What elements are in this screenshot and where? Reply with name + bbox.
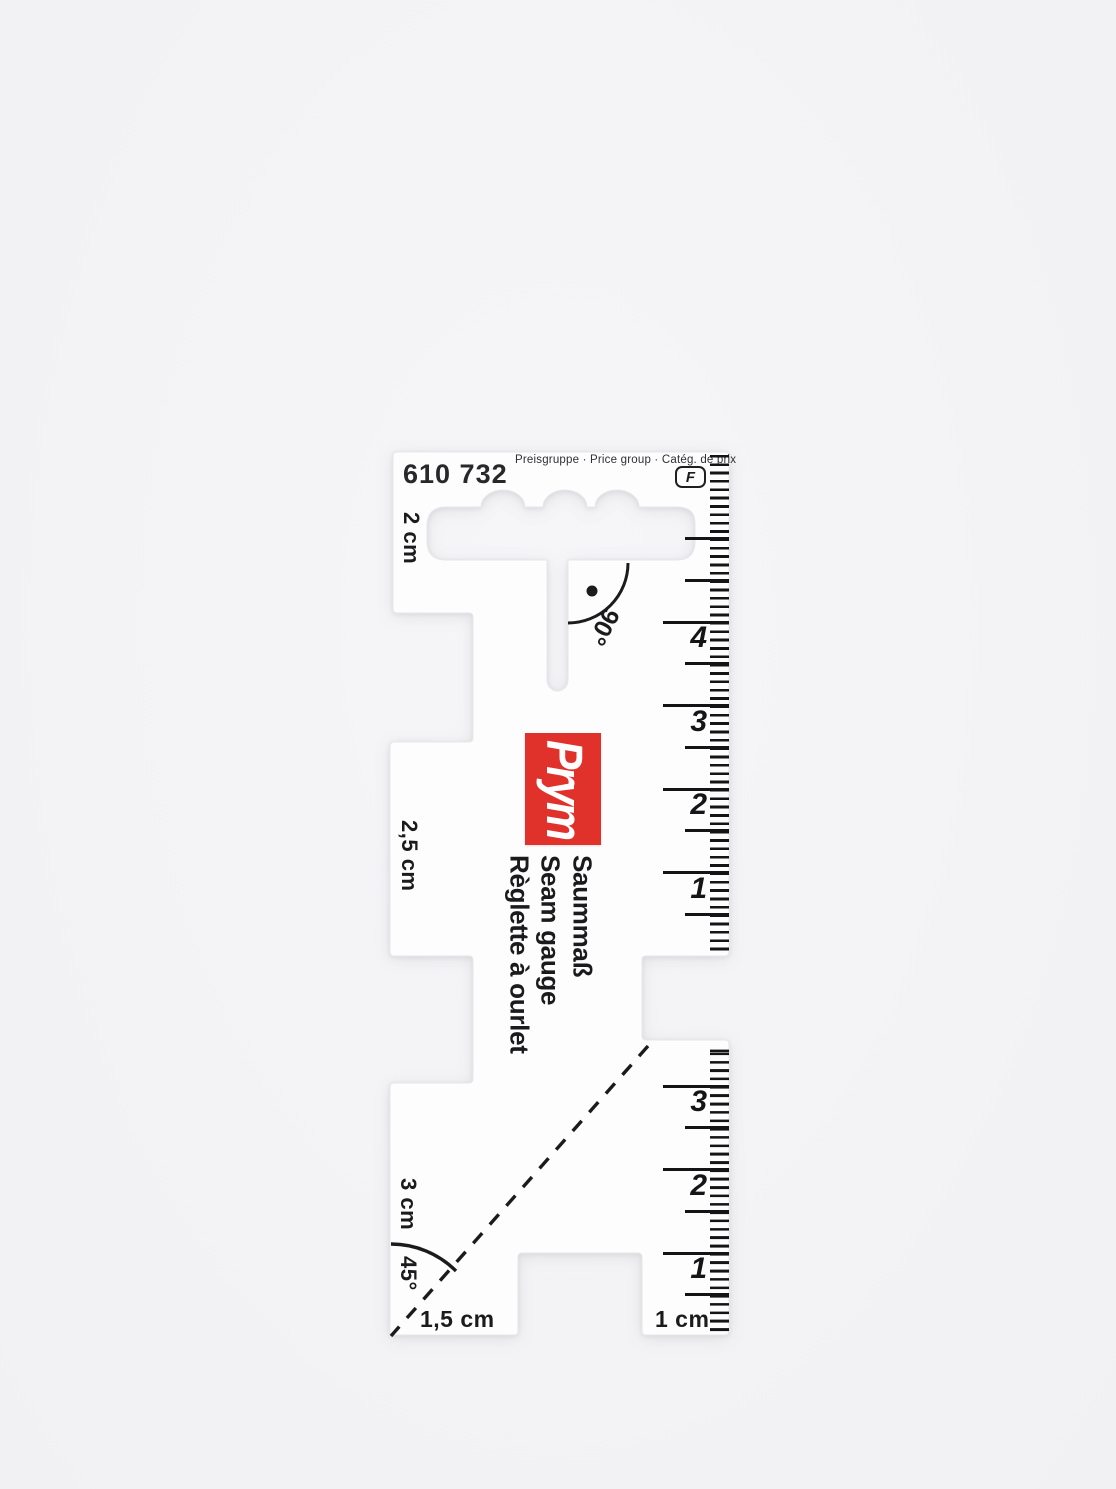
prym-logo-rotated: Prym xyxy=(525,733,601,845)
part-number: 610 732 xyxy=(403,459,508,490)
ruler-top-halfline xyxy=(685,829,729,832)
gauge-printing: 610 732 Preisgruppe · Price group · Caté… xyxy=(388,450,730,1337)
ruler-bottom-halfline xyxy=(685,1293,729,1296)
ruler-top-number: 2 xyxy=(680,792,707,818)
ruler-top-halfline xyxy=(685,662,729,665)
ruler-top-number: 1 xyxy=(680,876,707,902)
price-group-value: F xyxy=(686,469,695,486)
product-name-fr: Règlette à ourlet xyxy=(503,855,535,1054)
label-tab-3cm: 3 cm xyxy=(395,1178,447,1204)
label-tab-2-5cm: 2,5 cm xyxy=(396,820,468,846)
ruler-bottom-number: 2 xyxy=(680,1173,707,1199)
ruler-bottom-number: 1 xyxy=(680,1256,707,1282)
product-photo: 610 732 Preisgruppe · Price group · Caté… xyxy=(0,0,1116,1489)
ruler-top-halfline xyxy=(685,537,729,540)
price-group-badge: F xyxy=(675,466,706,488)
label-notch-1-5cm: 1,5 cm xyxy=(420,1306,495,1333)
ruler-bottom-halfline xyxy=(685,1210,729,1213)
label-edge-1cm: 1 cm xyxy=(655,1306,709,1333)
ruler-bottom-number: 3 xyxy=(680,1089,707,1115)
label-angle-90: 90° xyxy=(577,594,630,659)
ruler-top-halfline xyxy=(685,579,729,582)
ruler-bottom-mm-ticks xyxy=(710,1048,729,1335)
label-angle-45: 45° xyxy=(395,1256,430,1282)
ruler-top-halfline xyxy=(685,913,729,916)
label-tab-2cm: 2 cm xyxy=(398,512,450,538)
prym-logo: Prym xyxy=(525,733,601,845)
seam-gauge: 610 732 Preisgruppe · Price group · Caté… xyxy=(388,450,730,1337)
price-group-label: Preisgruppe · Price group · Catég. de pr… xyxy=(515,454,736,466)
product-name-en: Seam gauge xyxy=(535,855,567,1054)
ruler-top-number: 4 xyxy=(680,625,707,651)
ruler-bottom-halfline xyxy=(685,1126,729,1129)
product-name-block: Saummaß Seam gauge Règlette à ourlet xyxy=(503,855,702,950)
ruler-top-number: 3 xyxy=(680,709,707,735)
prym-logo-text: Prym xyxy=(534,740,592,838)
ruler-top-halfline xyxy=(685,746,729,749)
product-name-de: Saummaß xyxy=(566,855,598,1054)
